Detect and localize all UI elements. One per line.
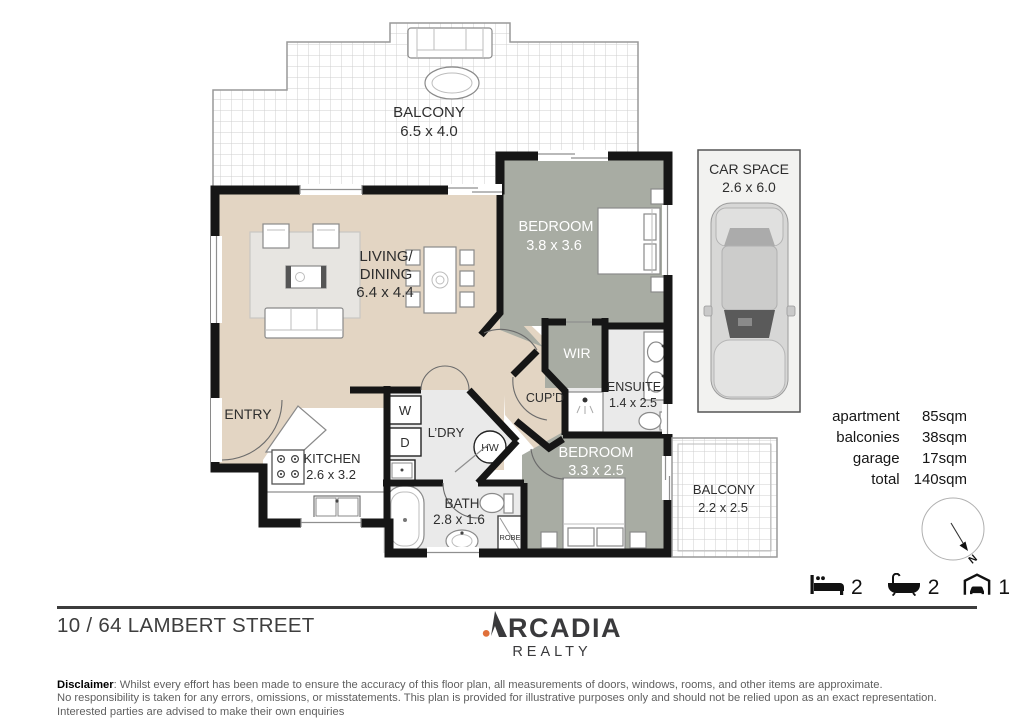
dryer-label: D <box>400 435 409 450</box>
bath-icon <box>887 573 921 602</box>
car-spaces-count: 1 <box>998 576 1010 600</box>
bathrooms-count: 2 <box>928 576 940 600</box>
outdoor-sofa <box>408 28 492 58</box>
kitchen-sink <box>314 496 360 518</box>
area-value: 38sqm <box>914 429 967 446</box>
sofa <box>265 308 343 338</box>
feature-summary: 2 2 1 <box>810 573 1010 602</box>
area-value: 85sqm <box>914 408 967 425</box>
bedroom-main-label: BEDROOM <box>519 219 594 235</box>
logo-subtitle: REALTY <box>452 644 652 660</box>
car-space-dims: 2.6 x 6.0 <box>722 179 776 195</box>
living-dims: 6.4 x 4.4 <box>356 284 414 301</box>
arcadia-realty-logo: RCADIA REALTY <box>452 611 652 660</box>
armchair <box>263 224 289 248</box>
dining-table <box>424 247 456 313</box>
area-label: total <box>832 471 900 488</box>
car-space-label: CAR SPACE <box>709 161 789 177</box>
kitchen-dims: 2.6 x 3.2 <box>306 467 356 482</box>
bedrooms-feature: 2 <box>810 574 863 601</box>
car-top-view <box>704 203 795 399</box>
floor-plan: BALCONY 6.5 x 4.0 <box>0 0 1024 600</box>
bedside-table <box>630 532 646 548</box>
car-spaces-feature: 1 <box>963 573 1010 602</box>
car-space: CAR SPACE 2.6 x 6.0 <box>698 150 800 412</box>
property-address: 10 / 64 LAMBERT STREET <box>57 614 315 638</box>
compass-north-label: N <box>966 551 980 565</box>
area-label: garage <box>832 450 900 467</box>
entry-door-opening <box>211 398 222 462</box>
laundry-label: L’DRY <box>428 425 465 440</box>
cooktop <box>272 450 304 484</box>
bath-label: BATH <box>444 496 479 511</box>
disclaimer-line1: : Whilst every effort has been made to e… <box>114 679 883 691</box>
bedroom-main-dims: 3.8 x 3.6 <box>526 238 582 254</box>
area-label: apartment <box>832 408 900 425</box>
area-label: balconies <box>832 429 900 446</box>
balcony-2-label: BALCONY <box>693 482 755 497</box>
bedside-table <box>541 532 557 548</box>
footer-divider <box>57 606 977 609</box>
bedroom-2-label: BEDROOM <box>559 445 634 461</box>
outdoor-table <box>425 67 479 99</box>
bedroom-2-dims: 3.3 x 2.5 <box>568 463 624 479</box>
wir-label: WIR <box>563 345 590 361</box>
kitchen-label: KITCHEN <box>303 451 360 466</box>
toilet <box>480 494 513 514</box>
washer-label: W <box>399 403 412 418</box>
basin <box>648 342 665 362</box>
coffee-table <box>286 266 326 288</box>
compass: N <box>922 498 984 566</box>
area-value: 17sqm <box>914 450 967 467</box>
robe-label: ROBE <box>500 533 521 542</box>
bath-dims: 2.8 x 1.6 <box>433 512 485 527</box>
arcadia-logo-mark-icon <box>482 611 508 642</box>
compass-arrowhead <box>960 542 969 552</box>
living-label-1: LIVING/ <box>359 248 413 265</box>
living-label-2: DINING <box>360 266 413 283</box>
dining-furniture <box>406 247 474 313</box>
balcony-2-dims: 2.2 x 2.5 <box>698 500 748 515</box>
ensuite-label: ENSUITE <box>607 380 661 394</box>
area-summary: apartment 85sqm balconies 38sqm garage 1… <box>832 408 967 488</box>
garage-icon <box>963 573 991 602</box>
living-room-furniture <box>250 224 360 338</box>
entry-label: ENTRY <box>224 406 272 422</box>
bed-icon <box>810 574 844 601</box>
bedrooms-count: 2 <box>851 576 863 600</box>
disclaimer-line3: Interested parties are advised to make t… <box>57 706 344 718</box>
cupd-label: CUP’D <box>526 391 564 405</box>
dining-chair <box>460 292 474 307</box>
bathrooms-feature: 2 <box>887 573 940 602</box>
dining-chair <box>460 250 474 265</box>
logo-wordmark: RCADIA <box>452 611 652 642</box>
area-value: 140sqm <box>914 471 967 488</box>
disclaimer-title: Disclaimer <box>57 679 114 691</box>
shower <box>567 392 603 432</box>
armchair <box>313 224 339 248</box>
logo-word-rest: RCADIA <box>508 615 622 642</box>
balcony-2: BALCONY 2.2 x 2.5 <box>672 438 777 557</box>
balcony-main-label: BALCONY <box>393 104 465 121</box>
disclaimer-line2: No responsibility is taken for any error… <box>57 692 937 704</box>
balcony-main-dims: 6.5 x 4.0 <box>400 123 458 140</box>
dining-chair <box>460 271 474 286</box>
robe: ROBE <box>498 516 522 553</box>
disclaimer: Disclaimer: Whilst every effort has been… <box>57 679 987 719</box>
compass-needle <box>951 523 963 543</box>
ensuite-dims: 1.4 x 2.5 <box>609 396 657 410</box>
